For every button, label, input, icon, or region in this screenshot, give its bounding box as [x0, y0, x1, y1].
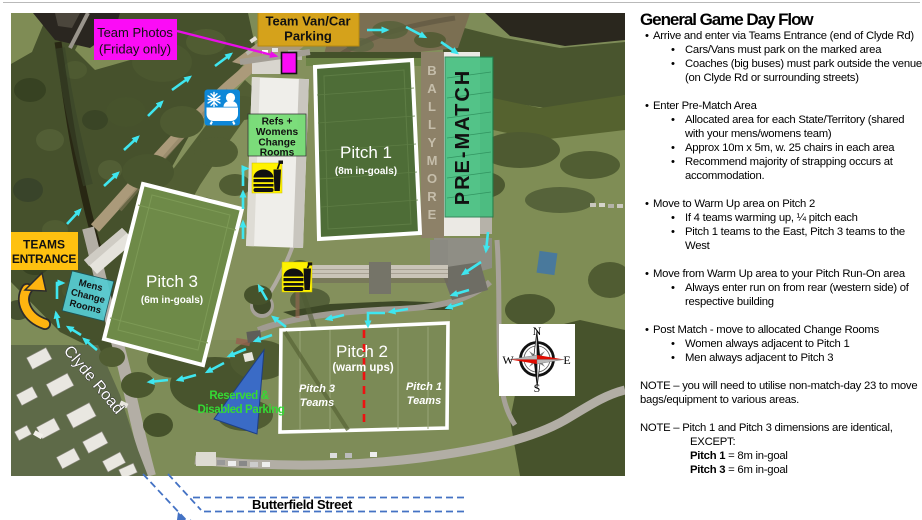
svg-text:Refs +: Refs + [262, 117, 293, 128]
svg-text:ENTRANCE: ENTRANCE [12, 252, 77, 266]
svg-text:Pitch 3: Pitch 3 [299, 383, 335, 395]
svg-text:(warm ups): (warm ups) [332, 362, 394, 374]
svg-text:Reserved &: Reserved & [209, 390, 268, 402]
svg-text:Pitch 3: Pitch 3 [146, 272, 198, 291]
svg-text:Pitch 2: Pitch 2 [336, 342, 388, 361]
svg-text:Womens: Womens [256, 127, 299, 138]
svg-text:BALLYMORE: BALLYMORE [427, 63, 438, 222]
svg-text:(Friday only): (Friday only) [99, 42, 171, 57]
svg-text:(6m in-goals): (6m in-goals) [141, 295, 203, 306]
svg-text:(8m in-goals): (8m in-goals) [335, 166, 397, 177]
svg-text:TEAMS: TEAMS [23, 238, 65, 252]
svg-text:N: N [533, 324, 542, 338]
svg-text:S: S [534, 381, 541, 395]
svg-text:PRE-MATCH: PRE-MATCH [452, 69, 474, 206]
svg-text:W: W [502, 353, 514, 367]
svg-text:Rooms: Rooms [260, 148, 295, 159]
svg-text:Teams: Teams [407, 395, 441, 407]
svg-text:Pitch 1: Pitch 1 [406, 381, 442, 393]
svg-text:Team Photos: Team Photos [97, 25, 173, 40]
svg-text:Butterfield Street: Butterfield Street [252, 497, 353, 512]
svg-text:E: E [563, 353, 570, 367]
svg-text:Disabled Parking: Disabled Parking [198, 404, 285, 416]
svg-text:Parking: Parking [284, 29, 332, 44]
svg-text:Pitch 1: Pitch 1 [340, 143, 392, 162]
svg-text:Team Van/Car: Team Van/Car [265, 14, 350, 29]
svg-text:Teams: Teams [300, 397, 334, 409]
